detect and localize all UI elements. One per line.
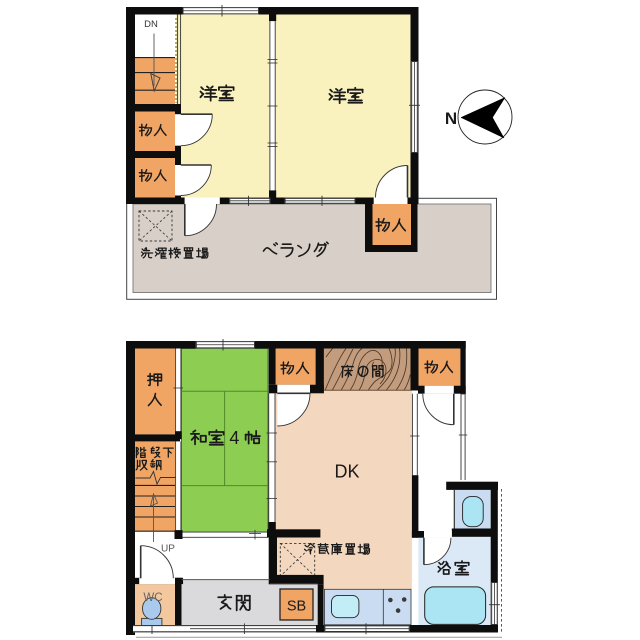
svg-text:WC: WC: [143, 592, 162, 604]
svg-text:4: 4: [229, 428, 239, 448]
svg-text:DK: DK: [334, 462, 359, 482]
svg-text:UP: UP: [161, 544, 175, 555]
svg-text:N: N: [445, 109, 457, 128]
svg-text:SB: SB: [287, 599, 306, 615]
svg-text:DN: DN: [144, 19, 158, 30]
